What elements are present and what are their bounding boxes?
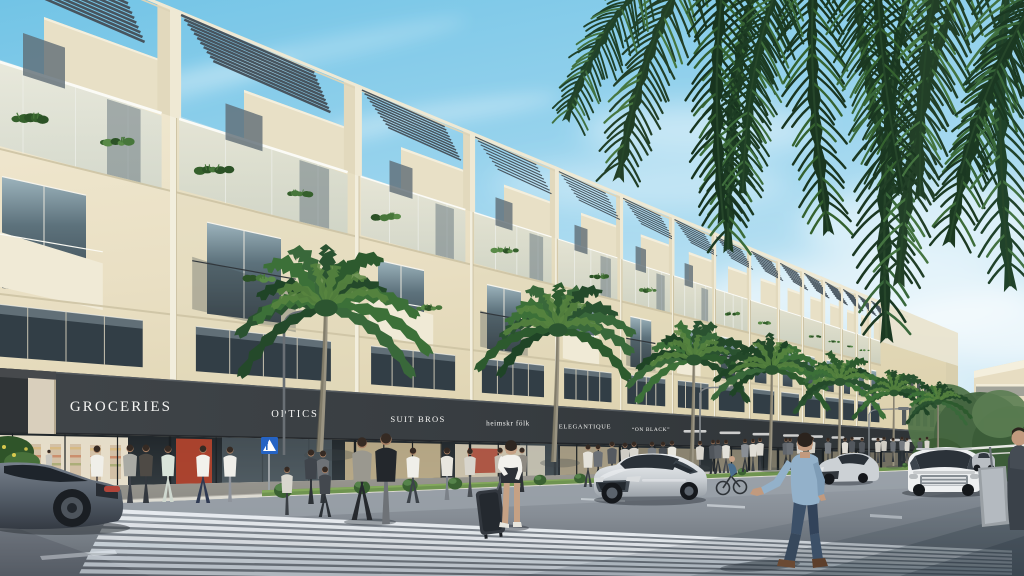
svg-text:GROCERIES: GROCERIES <box>70 399 172 415</box>
svg-text:heimskr fölk: heimskr fölk <box>486 419 530 427</box>
svg-text:OPTICS: OPTICS <box>271 409 319 420</box>
svg-text:“ON BLACK”: “ON BLACK” <box>632 426 670 433</box>
svg-text:SUIT BROS: SUIT BROS <box>390 414 445 424</box>
svg-text:ELEGANTIQUE: ELEGANTIQUE <box>559 424 611 431</box>
